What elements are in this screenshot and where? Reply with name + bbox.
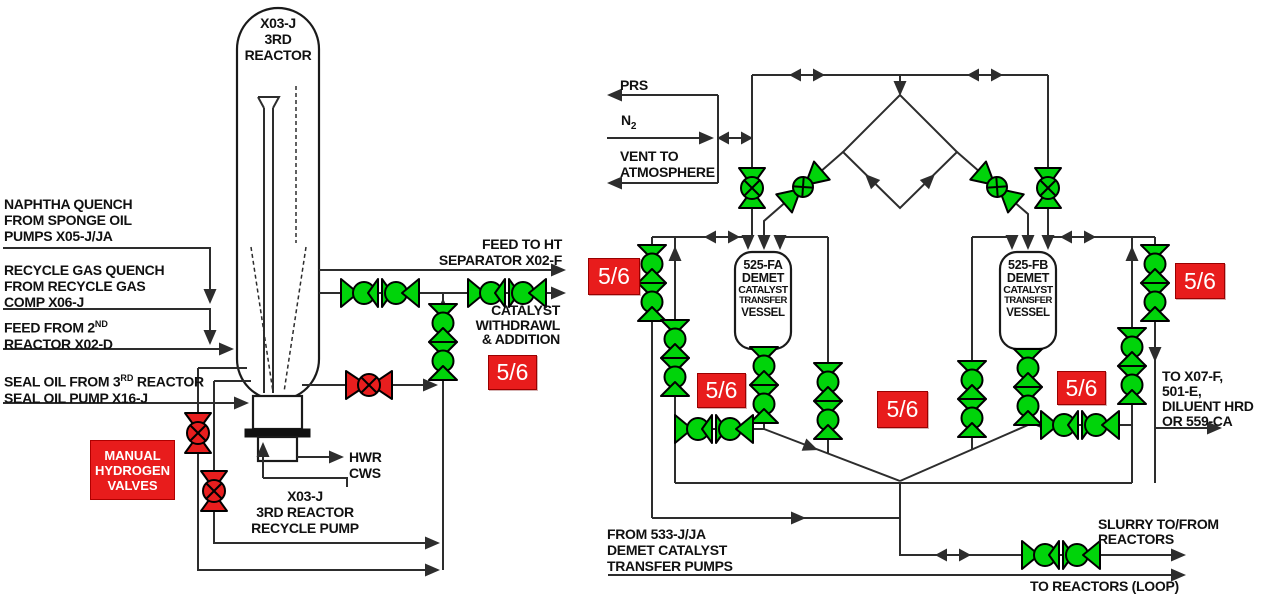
- note-badge-2: 5/6: [588, 258, 640, 295]
- label-cws: CWS: [349, 465, 381, 481]
- vessel-a-outlet-valves-icon: [750, 347, 778, 423]
- label-recycle-gas-quench: RECYCLE GAS QUENCH FROM RECYCLE GAS COMP…: [4, 262, 214, 310]
- note-badge-3: 5/6: [697, 373, 746, 408]
- label-naphtha-quench: NAPHTHA QUENCH FROM SPONGE OIL PUMPS X05…: [4, 196, 214, 244]
- label-n2: N2: [621, 112, 636, 135]
- diagonal-inlet-valve-right-icon: [970, 162, 1023, 213]
- valve-column-a2-icon: [1141, 245, 1169, 321]
- manual-hydrogen-valve-1-icon: [185, 413, 211, 453]
- process-diagram: X03-J 3RD REACTOR NAPHTHA QUENCH FROM SP…: [0, 0, 1263, 598]
- recycle-pump-label: X03-J 3RD REACTOR RECYCLE PUMP: [230, 488, 380, 536]
- note-badge-6: 5/6: [1175, 263, 1225, 299]
- label-seal-oil: SEAL OIL FROM 3RD REACTORSEAL OIL PUMP X…: [4, 370, 224, 406]
- flow-arrows-right: [607, 69, 1222, 582]
- vent-header-valve-left-icon: [739, 168, 765, 208]
- label-to-x07f: TO X07-F, 501-E, DILUENT HRD OR 559-CA: [1162, 369, 1262, 429]
- reactor-vessel: [237, 8, 319, 400]
- label-prs: PRS: [620, 77, 648, 93]
- valve-column-d-icon: [814, 363, 842, 439]
- vessel-b-label: 525-FB DEMET CATALYST TRANSFER VESSEL: [1000, 259, 1056, 320]
- label-feed-to-ht-separator: FEED TO HT SEPARATOR X02-F: [422, 236, 562, 268]
- note-badge-4: 5/6: [877, 391, 928, 428]
- label-vent-to-atmosphere: VENT TO ATMOSPHERE: [620, 148, 740, 180]
- diagonal-inlet-valve-left-icon: [776, 162, 829, 213]
- label-to-reactors-loop: TO REACTORS (LOOP): [1030, 578, 1200, 594]
- label-from-533: FROM 533-J/JA DEMET CATALYST TRANSFER PU…: [607, 526, 767, 574]
- vessel-b-outlet-valves-icon: [1014, 349, 1042, 425]
- recycle-pump: [245, 396, 310, 461]
- manual-hydrogen-valves-box: MANUAL HYDROGEN VALVES: [90, 440, 175, 500]
- note-badge-1: 5/6: [488, 355, 537, 390]
- label-catalyst-withdrawal: CATALYST WITHDRAWL & ADDITION: [430, 303, 560, 347]
- note-badge-5: 5/6: [1057, 371, 1106, 405]
- valve-column-d2-icon: [958, 361, 986, 437]
- vent-header-valve-right-icon: [1035, 168, 1061, 208]
- pump-discharge-valve-closed-icon: [346, 371, 392, 399]
- label-slurry-to-from: SLURRY TO/FROM REACTORS: [1098, 517, 1228, 547]
- reactor-title: X03-J 3RD REACTOR: [237, 15, 319, 63]
- vessel-a-label: 525-FA DEMET CATALYST TRANSFER VESSEL: [735, 259, 791, 320]
- demet-transfer-section: [607, 69, 1222, 582]
- label-feed-from-2nd: FEED FROM 2NDREACTOR X02-D: [4, 316, 214, 352]
- label-hwr: HWR: [349, 449, 382, 465]
- valve-column-a-icon: [638, 245, 666, 321]
- valve-column-b-icon: [661, 320, 689, 396]
- manual-hydrogen-valve-2-icon: [201, 471, 227, 511]
- valve-column-b2-icon: [1118, 328, 1146, 404]
